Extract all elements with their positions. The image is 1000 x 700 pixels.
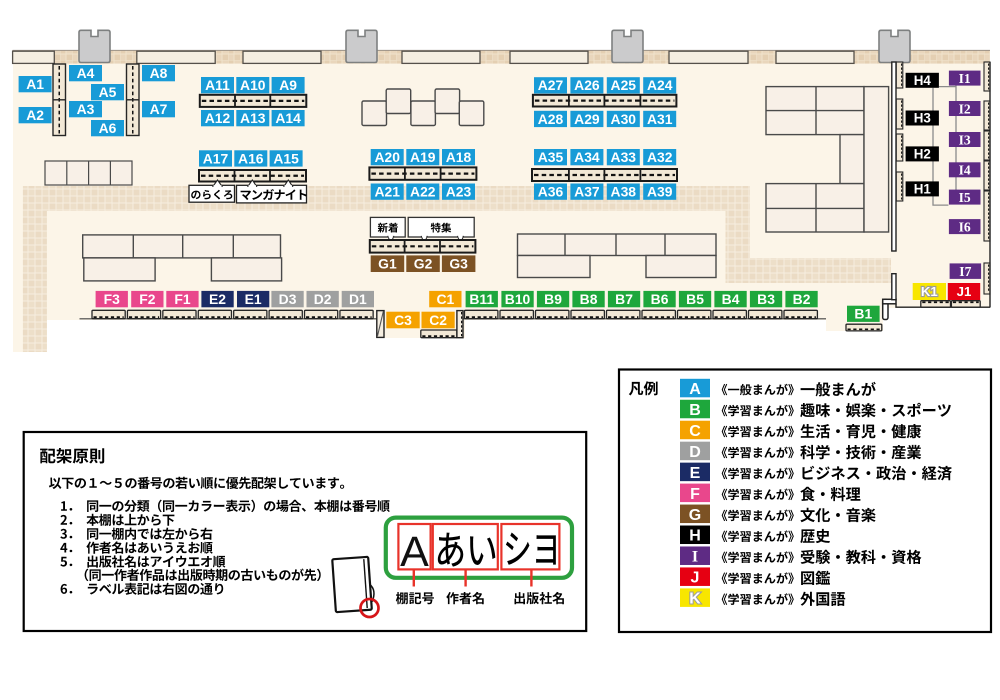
svg-text:B11: B11: [469, 291, 494, 307]
svg-text:F3: F3: [104, 291, 120, 307]
svg-text:I3: I3: [959, 132, 971, 147]
svg-text:A32: A32: [647, 149, 673, 165]
svg-text:A16: A16: [238, 150, 264, 166]
svg-text:A27: A27: [538, 77, 564, 93]
svg-text:B9: B9: [544, 291, 562, 307]
svg-text:B: B: [689, 402, 701, 419]
svg-text:C2: C2: [429, 312, 447, 328]
svg-text:G2: G2: [414, 256, 433, 272]
svg-text:C3: C3: [394, 312, 412, 328]
svg-text:A23: A23: [446, 184, 472, 200]
svg-text:B1: B1: [854, 306, 872, 322]
svg-text:A: A: [400, 528, 429, 576]
svg-text:A31: A31: [647, 111, 673, 127]
svg-text:A30: A30: [611, 111, 637, 127]
svg-text:H: H: [689, 528, 701, 545]
svg-text:A22: A22: [410, 184, 436, 200]
svg-text:B7: B7: [615, 291, 633, 307]
svg-text:A5: A5: [99, 84, 117, 100]
svg-text:I4: I4: [959, 163, 971, 178]
svg-text:D1: D1: [349, 291, 367, 307]
svg-text:A35: A35: [538, 149, 564, 165]
svg-text:A8: A8: [150, 65, 168, 81]
svg-text:A4: A4: [77, 65, 95, 81]
svg-text:G: G: [689, 507, 701, 524]
svg-text:K1: K1: [921, 284, 938, 299]
svg-text:E1: E1: [245, 291, 262, 307]
svg-text:I6: I6: [959, 219, 971, 234]
svg-text:B10: B10: [505, 291, 531, 307]
svg-text:A37: A37: [574, 184, 600, 200]
svg-text:A1: A1: [26, 76, 44, 92]
svg-text:D3: D3: [279, 291, 297, 307]
svg-text:G3: G3: [449, 256, 468, 272]
svg-text:A33: A33: [611, 149, 637, 165]
svg-text:A9: A9: [279, 77, 297, 93]
svg-text:B3: B3: [757, 291, 775, 307]
svg-text:J: J: [691, 570, 700, 587]
svg-text:A13: A13: [240, 110, 266, 126]
svg-text:F2: F2: [139, 291, 155, 307]
svg-text:A21: A21: [374, 184, 400, 200]
svg-text:I7: I7: [959, 264, 971, 279]
svg-text:A25: A25: [611, 77, 637, 93]
svg-text:A28: A28: [538, 111, 564, 127]
svg-text:A: A: [689, 381, 701, 398]
svg-text:D2: D2: [314, 291, 332, 307]
svg-text:A3: A3: [77, 101, 95, 117]
svg-text:B4: B4: [722, 291, 740, 307]
svg-text:A29: A29: [574, 111, 600, 127]
svg-text:A11: A11: [205, 77, 230, 93]
svg-text:A38: A38: [611, 184, 637, 200]
svg-text:E: E: [690, 465, 701, 482]
svg-text:G1: G1: [378, 256, 397, 272]
svg-text:B5: B5: [686, 291, 704, 307]
svg-text:A2: A2: [26, 107, 44, 123]
svg-text:D: D: [689, 444, 701, 461]
svg-text:K: K: [689, 591, 701, 608]
svg-text:A20: A20: [374, 149, 400, 165]
svg-text:I2: I2: [959, 101, 971, 116]
svg-text:I: I: [692, 549, 698, 566]
svg-text:B6: B6: [651, 291, 669, 307]
svg-text:F1: F1: [174, 291, 190, 307]
svg-text:A12: A12: [205, 110, 231, 126]
svg-text:C1: C1: [436, 291, 454, 307]
svg-text:A6: A6: [99, 120, 117, 136]
svg-text:C: C: [689, 423, 701, 440]
svg-text:A7: A7: [150, 101, 168, 117]
svg-text:B8: B8: [580, 291, 598, 307]
svg-text:A36: A36: [538, 184, 564, 200]
svg-text:A24: A24: [647, 77, 673, 93]
svg-text:H1: H1: [914, 182, 932, 197]
svg-text:J1: J1: [957, 284, 972, 299]
svg-text:A14: A14: [275, 110, 301, 126]
svg-text:E2: E2: [209, 291, 226, 307]
svg-text:A26: A26: [574, 77, 600, 93]
svg-text:A15: A15: [273, 150, 299, 166]
svg-text:A17: A17: [203, 150, 229, 166]
svg-text:B2: B2: [793, 291, 811, 307]
svg-text:H2: H2: [914, 147, 931, 162]
svg-text:A19: A19: [410, 149, 436, 165]
svg-text:I1: I1: [959, 71, 971, 86]
svg-text:F: F: [690, 486, 700, 503]
svg-text:H4: H4: [914, 73, 932, 88]
svg-text:H3: H3: [914, 111, 931, 126]
svg-text:A18: A18: [446, 149, 472, 165]
svg-text:A10: A10: [240, 77, 266, 93]
svg-text:I5: I5: [959, 190, 971, 205]
svg-text:A39: A39: [647, 184, 673, 200]
svg-text:A34: A34: [574, 149, 600, 165]
